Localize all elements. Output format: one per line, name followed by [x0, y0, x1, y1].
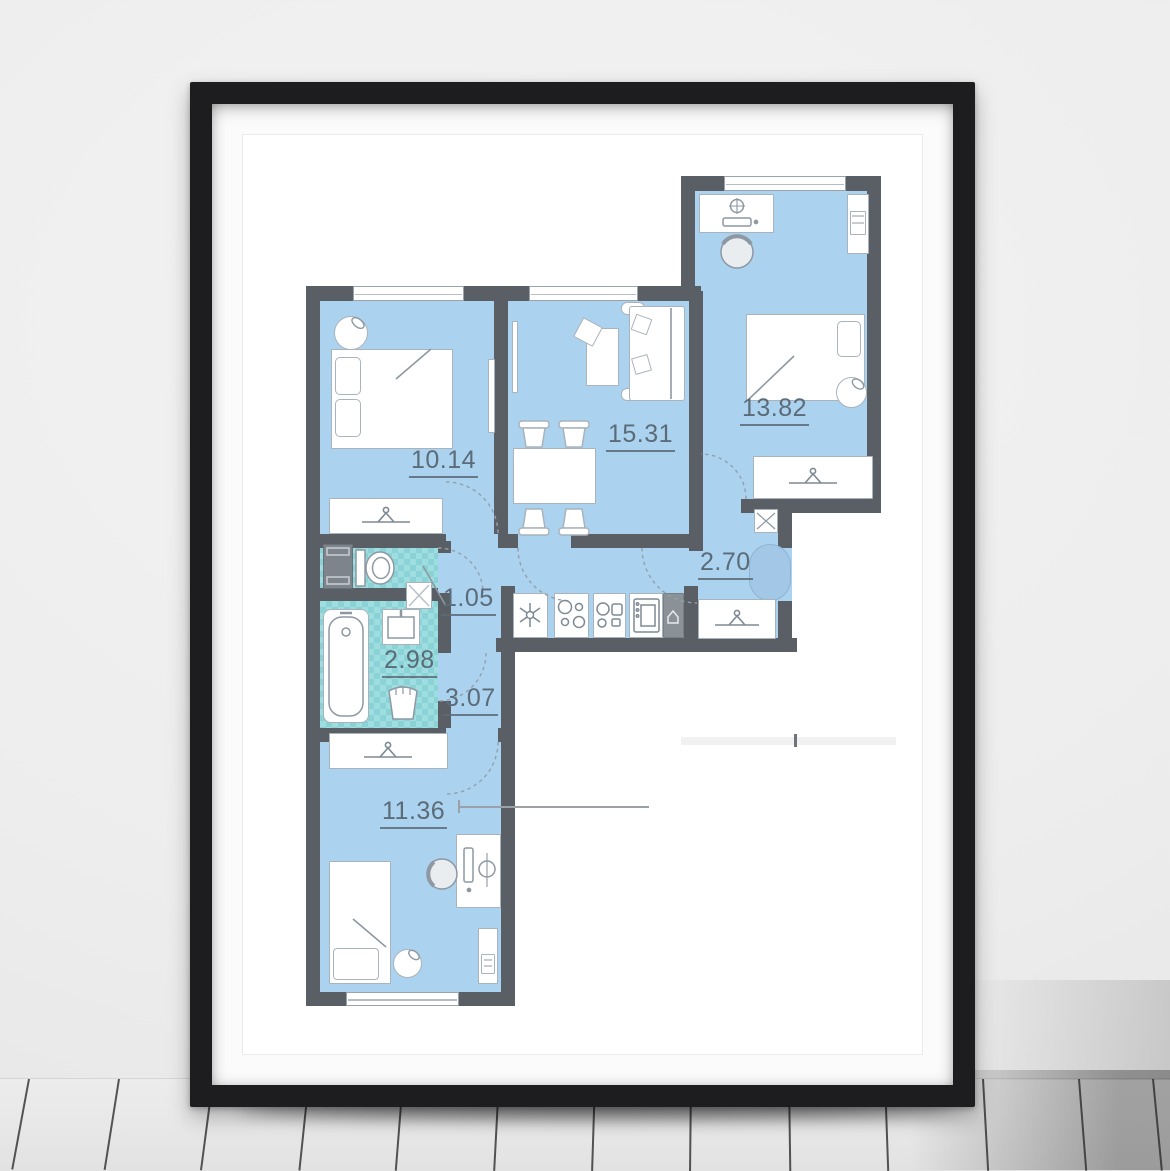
room-area-label: 2.98: [382, 648, 437, 678]
hanger-hook: [810, 468, 815, 473]
hanger-hook: [734, 610, 739, 615]
toilet-tank: [356, 550, 365, 586]
snowflake-center: [527, 612, 534, 619]
burner-icon: [562, 619, 569, 626]
burner-icon: [574, 617, 585, 628]
keyboard-icon: [723, 218, 751, 226]
oven-knob: [636, 615, 638, 617]
leaf-icon: [407, 948, 421, 961]
burner-icon: [576, 604, 583, 611]
plan-linework: [306, 176, 896, 1006]
plate-icon: [597, 603, 609, 615]
chair-seat: [563, 509, 585, 528]
pot-icon: [612, 604, 622, 615]
plate-icon: [598, 619, 606, 627]
chair-seat: [523, 509, 545, 528]
door-arc: [642, 548, 697, 603]
hanger-icon: [364, 748, 412, 757]
chair-seat: [523, 428, 545, 447]
hanger-icon: [362, 513, 410, 522]
oven-knob: [636, 609, 638, 611]
drawer-lines: [852, 216, 864, 223]
door-arc: [446, 482, 498, 534]
blanket-fold-line: [353, 919, 386, 947]
sink-basin: [388, 617, 414, 638]
leaf-icon: [350, 316, 366, 331]
blanket-fold-line: [749, 356, 794, 399]
boiler-house-icon: [668, 611, 678, 623]
chair-seat: [563, 428, 585, 447]
hanger-icon: [789, 474, 837, 483]
hanger-icons: [362, 468, 837, 757]
desk-lamp-spokes: [729, 198, 745, 214]
dimension-tick: [458, 800, 460, 813]
room-area-label: 13.82: [740, 396, 809, 426]
drawer-lines: [484, 960, 492, 966]
furniture-detail-group: [353, 308, 794, 947]
oven-door-icon: [641, 605, 655, 626]
dining-chairs: [519, 421, 589, 535]
floor-plan: 10.14 15.31 13.82 2.70 1.05 2.98 3.07 11…: [306, 176, 896, 1006]
faint-rule-tick: [794, 734, 797, 747]
room-area-label: 1.05: [441, 586, 496, 616]
frame-mat: 10.14 15.31 13.82 2.70 1.05 2.98 3.07 11…: [212, 104, 953, 1085]
room-area-label: 10.14: [409, 448, 478, 478]
wall-sink-cross: [409, 585, 429, 606]
burner-icon: [559, 601, 572, 614]
door-arc: [446, 742, 498, 794]
hanger-icon: [715, 616, 759, 625]
chair-top: [519, 528, 549, 535]
room-area-label: 2.70: [698, 550, 753, 580]
desk-chair-icons: [427, 198, 864, 966]
bathtub-inner: [329, 617, 363, 716]
mouse-icon: [467, 888, 470, 891]
room-area-label: 15.31: [606, 422, 675, 452]
picture-frame: 10.14 15.31 13.82 2.70 1.05 2.98 3.07 11…: [190, 82, 975, 1107]
hanger-hook: [385, 742, 390, 747]
door-arc: [518, 548, 571, 601]
electrical-cross-icon: [757, 513, 775, 529]
chair-top: [559, 421, 589, 428]
photo-of-framed-floor-plan: { "poster": { "kind": "apartment floor p…: [0, 0, 1170, 1170]
leaf-icon: [850, 377, 865, 391]
bath-fixtures: [327, 548, 429, 719]
room-area-label: 3.07: [443, 686, 498, 716]
chair-top: [559, 528, 589, 535]
cup-icon: [612, 619, 620, 626]
keyboard-icon: [464, 848, 473, 882]
washer-detail: [327, 548, 349, 555]
room-area-label: 11.36: [380, 799, 447, 829]
poster-paper: 10.14 15.31 13.82 2.70 1.05 2.98 3.07 11…: [242, 134, 923, 1055]
wall-corner-shadow: [960, 980, 1170, 1080]
blanket-fold-line: [396, 349, 431, 379]
hanger-hook: [383, 507, 388, 512]
floor-plank-line: [104, 1079, 120, 1170]
dimension-line: [459, 806, 649, 808]
bathtub-drain: [342, 628, 350, 636]
kitchen-icons: [520, 599, 678, 632]
door-arc: [701, 454, 746, 499]
faint-rule: [681, 737, 896, 745]
washer-detail: [327, 577, 349, 584]
mouse-icon: [754, 220, 757, 223]
oven-knob: [636, 603, 638, 605]
floor-plank-line: [11, 1079, 30, 1170]
chair-top: [519, 421, 549, 428]
